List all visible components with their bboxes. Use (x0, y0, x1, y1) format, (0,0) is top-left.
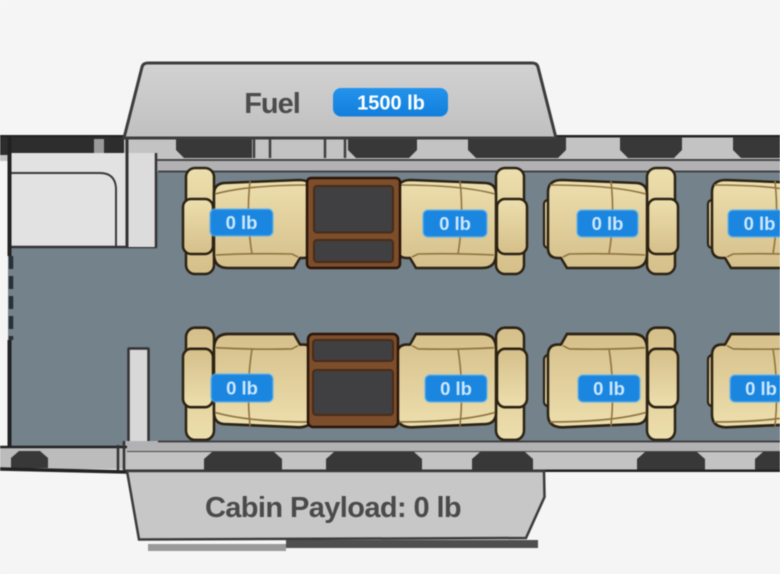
svg-text:0 lb: 0 lb (226, 378, 258, 399)
svg-text:Cabin Payload: 0 lb: Cabin Payload: 0 lb (205, 492, 461, 524)
svg-text:0 lb: 0 lb (440, 378, 472, 399)
svg-text:Fuel: Fuel (244, 88, 300, 120)
svg-text:0 lb: 0 lb (226, 212, 258, 233)
svg-text:0 lb: 0 lb (745, 378, 777, 399)
svg-text:0 lb: 0 lb (593, 378, 625, 399)
svg-text:1500 lb: 1500 lb (357, 93, 425, 115)
svg-text:0 lb: 0 lb (592, 213, 624, 234)
svg-text:0 lb: 0 lb (439, 213, 471, 234)
svg-text:0 lb: 0 lb (744, 213, 776, 234)
